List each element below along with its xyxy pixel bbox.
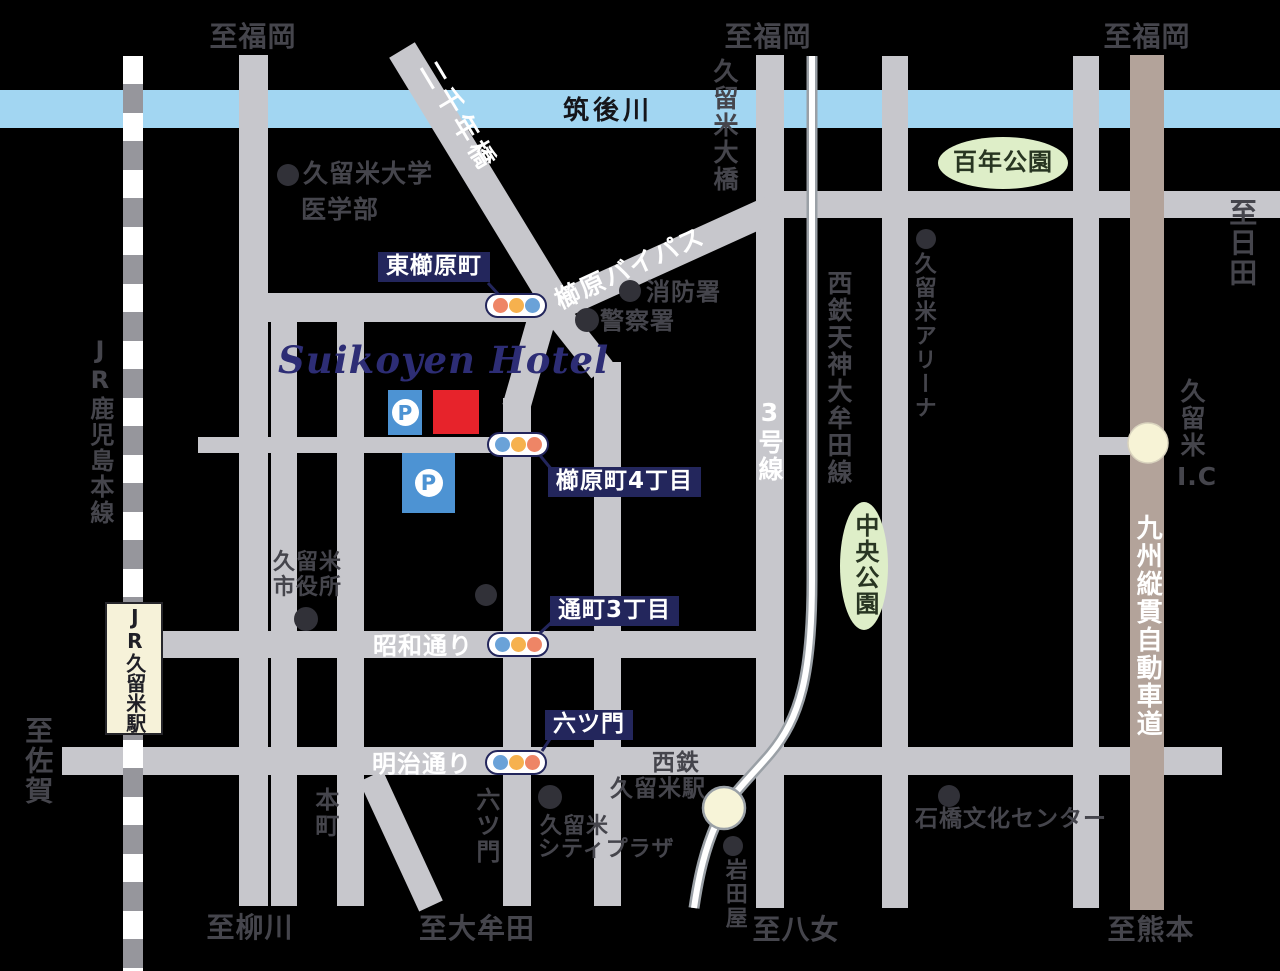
- edge-to-hita: 至日田: [1226, 198, 1256, 288]
- edge-to-fukuoka-3: 至福岡: [1103, 22, 1190, 52]
- signal-yellow-dot: [509, 298, 524, 313]
- signal-label-mutsumon: 六ツ門: [545, 710, 633, 740]
- jr-kurume-station-box: JR久留米駅: [105, 602, 163, 735]
- road-name-kurume-ohashi: 久留米大橋: [711, 58, 738, 193]
- hotel-name: Suikoyen Hotel: [278, 338, 609, 382]
- road-name-kyushu-expressway: 九州縦貫自動車道: [1133, 514, 1161, 738]
- edge-to-kumamoto: 至熊本: [1107, 915, 1194, 945]
- railway-name-nishitetsu-line: 西鉄天神大牟田線: [825, 270, 852, 486]
- edge-to-yame: 至八女: [752, 915, 839, 945]
- poi-iwataya: 岩田屋: [722, 858, 746, 930]
- road-name-route3: 3号線: [756, 398, 783, 483]
- signal-yellow-dot: [509, 755, 524, 770]
- poi-kurume-university-dept: 医学部: [301, 196, 379, 223]
- hotel-building-marker: [433, 390, 479, 434]
- poi-city-plaza-l2: シティプラザ: [538, 838, 675, 862]
- poi-ishibashi-center: 石橋文化センター: [915, 807, 1107, 832]
- edge-to-fukuoka-1: 至福岡: [209, 22, 296, 52]
- road-name-showa-street: 昭和通り: [373, 634, 473, 660]
- parking-p-glyph: P: [392, 399, 419, 426]
- poi-mutsumon-street: 六ツ門: [472, 787, 498, 865]
- road-name-meiji-street: 明治通り: [372, 752, 472, 778]
- river-name: 筑後川: [563, 97, 653, 125]
- expressway-band: [1130, 55, 1164, 910]
- poi-kurume-university: 久留米大学: [303, 160, 433, 187]
- signal-green-dot: [495, 437, 510, 452]
- signal-green-dot: [495, 637, 510, 652]
- edge-to-yanagawa: 至柳川: [206, 913, 293, 943]
- signal-red-dot: [525, 755, 540, 770]
- poi-nishitetsu-station-l2: 久留米駅: [610, 777, 706, 802]
- poi-kurume-arena: 久留米アリーナ: [911, 252, 935, 420]
- jr-kurume-station-name: JR久留米駅: [123, 605, 145, 733]
- chuo-park-name: 中央公園: [851, 513, 877, 617]
- poi-police-station: 警察署: [600, 309, 675, 335]
- signal-yellow-dot: [511, 437, 526, 452]
- parking-icon-1: P: [388, 390, 422, 435]
- signal-green-dot: [493, 755, 508, 770]
- poi-nishitetsu-station-l1: 西鉄: [652, 751, 700, 776]
- signal-kushihara-4chome: [487, 432, 549, 457]
- signal-red-dot: [527, 637, 542, 652]
- poi-fire-station: 消防署: [646, 280, 721, 306]
- signal-label-kushihara-4chome: 櫛原町4丁目: [548, 467, 701, 497]
- edge-to-saga: 至佐賀: [22, 716, 52, 806]
- kurume-ic-circle: [1128, 423, 1168, 463]
- signal-label-torimachi-3chome: 通町3丁目: [550, 596, 679, 626]
- signal-green-dot: [525, 298, 540, 313]
- poi-city-hall-l2: 市役所: [273, 576, 342, 600]
- signal-torimachi-3chome: [487, 632, 549, 657]
- poi-kurume-ic-kanji: 久留米: [1178, 378, 1205, 459]
- signal-red-dot: [493, 298, 508, 313]
- parking-icon-2: P: [402, 453, 455, 513]
- signal-label-higashi-kushihara: 東櫛原町: [378, 252, 490, 282]
- poi-kurume-ic-suffix: I.C: [1177, 463, 1217, 490]
- signal-higashi-kushihara: [485, 293, 547, 318]
- edge-to-omuta: 至大牟田: [419, 914, 535, 944]
- parking-p-glyph: P: [415, 469, 443, 497]
- nishitetsu-kurume-station-circle: [703, 787, 745, 829]
- poi-city-hall-l1: 久留米: [273, 551, 342, 575]
- poi-city-plaza-l1: 久留米: [540, 815, 609, 839]
- railway-name-jr-kagoshima: JR鹿児島本線: [86, 336, 112, 526]
- edge-to-fukuoka-2: 至福岡: [724, 22, 811, 52]
- poi-honmachi: 本町: [311, 787, 337, 839]
- signal-yellow-dot: [511, 637, 526, 652]
- signal-mutsumon: [485, 750, 547, 775]
- hyakunen-park-name: 百年公園: [953, 150, 1053, 176]
- access-map: 至福岡 至福岡 至福岡 至日田 至佐賀 至柳川 至大牟田 至八女 至熊本 筑後川…: [0, 0, 1280, 971]
- signal-red-dot: [527, 437, 542, 452]
- jr-railway: [123, 56, 143, 971]
